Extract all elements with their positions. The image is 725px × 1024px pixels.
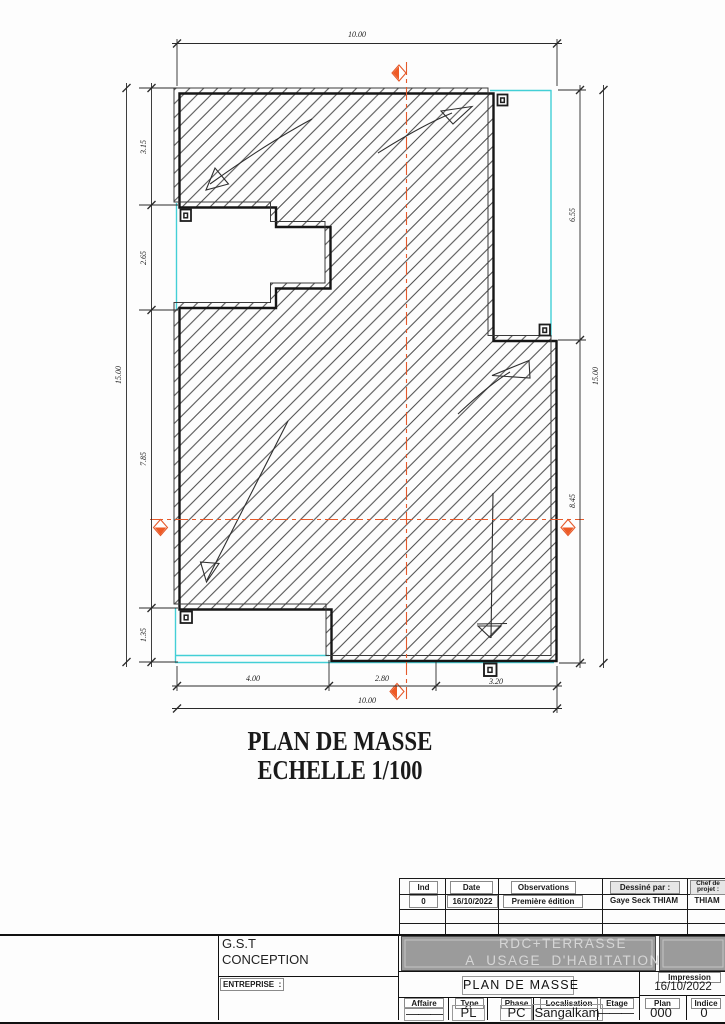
svg-text:10.00: 10.00 — [348, 30, 366, 39]
svg-text:15.00: 15.00 — [591, 367, 600, 385]
svg-text:2.80: 2.80 — [375, 674, 389, 683]
svg-text:2.65: 2.65 — [139, 251, 148, 265]
svg-text:10.00: 10.00 — [358, 696, 376, 705]
svg-text:6.55: 6.55 — [568, 208, 577, 222]
svg-text:8.45: 8.45 — [568, 494, 577, 508]
svg-text:3.20: 3.20 — [488, 677, 503, 686]
svg-text:1.35: 1.35 — [139, 628, 148, 642]
svg-text:15.00: 15.00 — [114, 366, 123, 384]
svg-text:3.15: 3.15 — [139, 140, 148, 155]
svg-text:7.85: 7.85 — [139, 452, 148, 466]
svg-text:4.00: 4.00 — [246, 674, 260, 683]
